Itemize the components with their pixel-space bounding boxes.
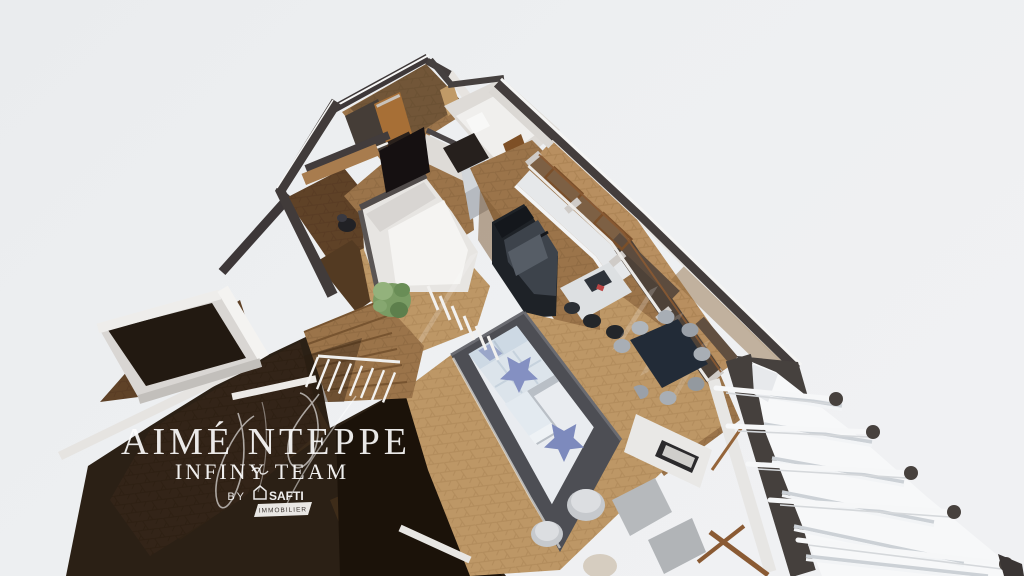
svg-text:BY: BY: [227, 491, 246, 503]
svg-text:INFINY TEAM: INFINY TEAM: [175, 459, 349, 484]
svg-text:AIMÉ NTEPPE: AIMÉ NTEPPE: [121, 421, 411, 463]
svg-text:SAFTI: SAFTI: [269, 489, 304, 503]
svg-text:IMMOBILIER: IMMOBILIER: [259, 506, 307, 514]
